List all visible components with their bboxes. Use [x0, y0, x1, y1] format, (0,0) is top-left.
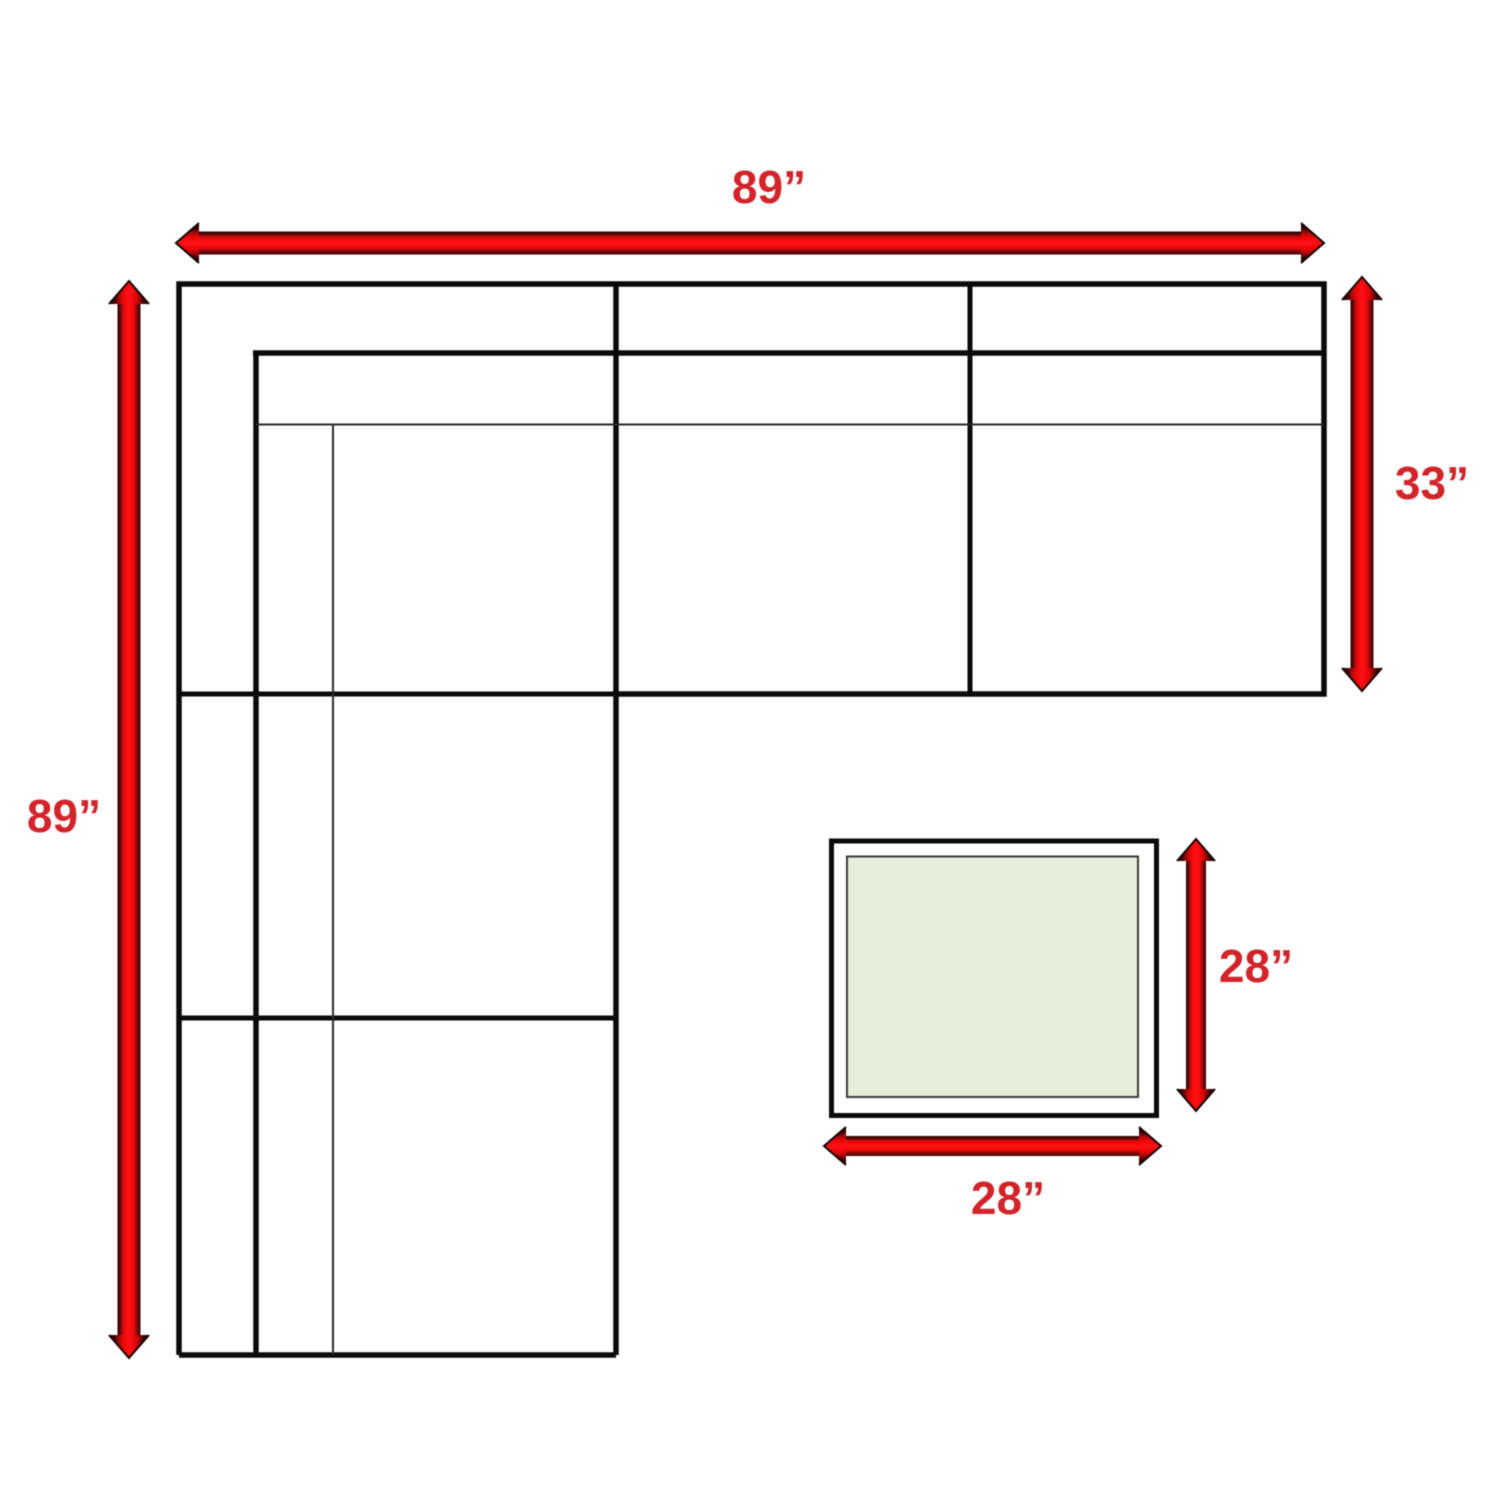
svg-text:28”: 28” — [1219, 940, 1293, 992]
svg-text:89”: 89” — [27, 790, 101, 842]
svg-text:28”: 28” — [971, 1172, 1045, 1224]
svg-text:33”: 33” — [1395, 457, 1469, 509]
svg-text:89”: 89” — [732, 161, 806, 213]
